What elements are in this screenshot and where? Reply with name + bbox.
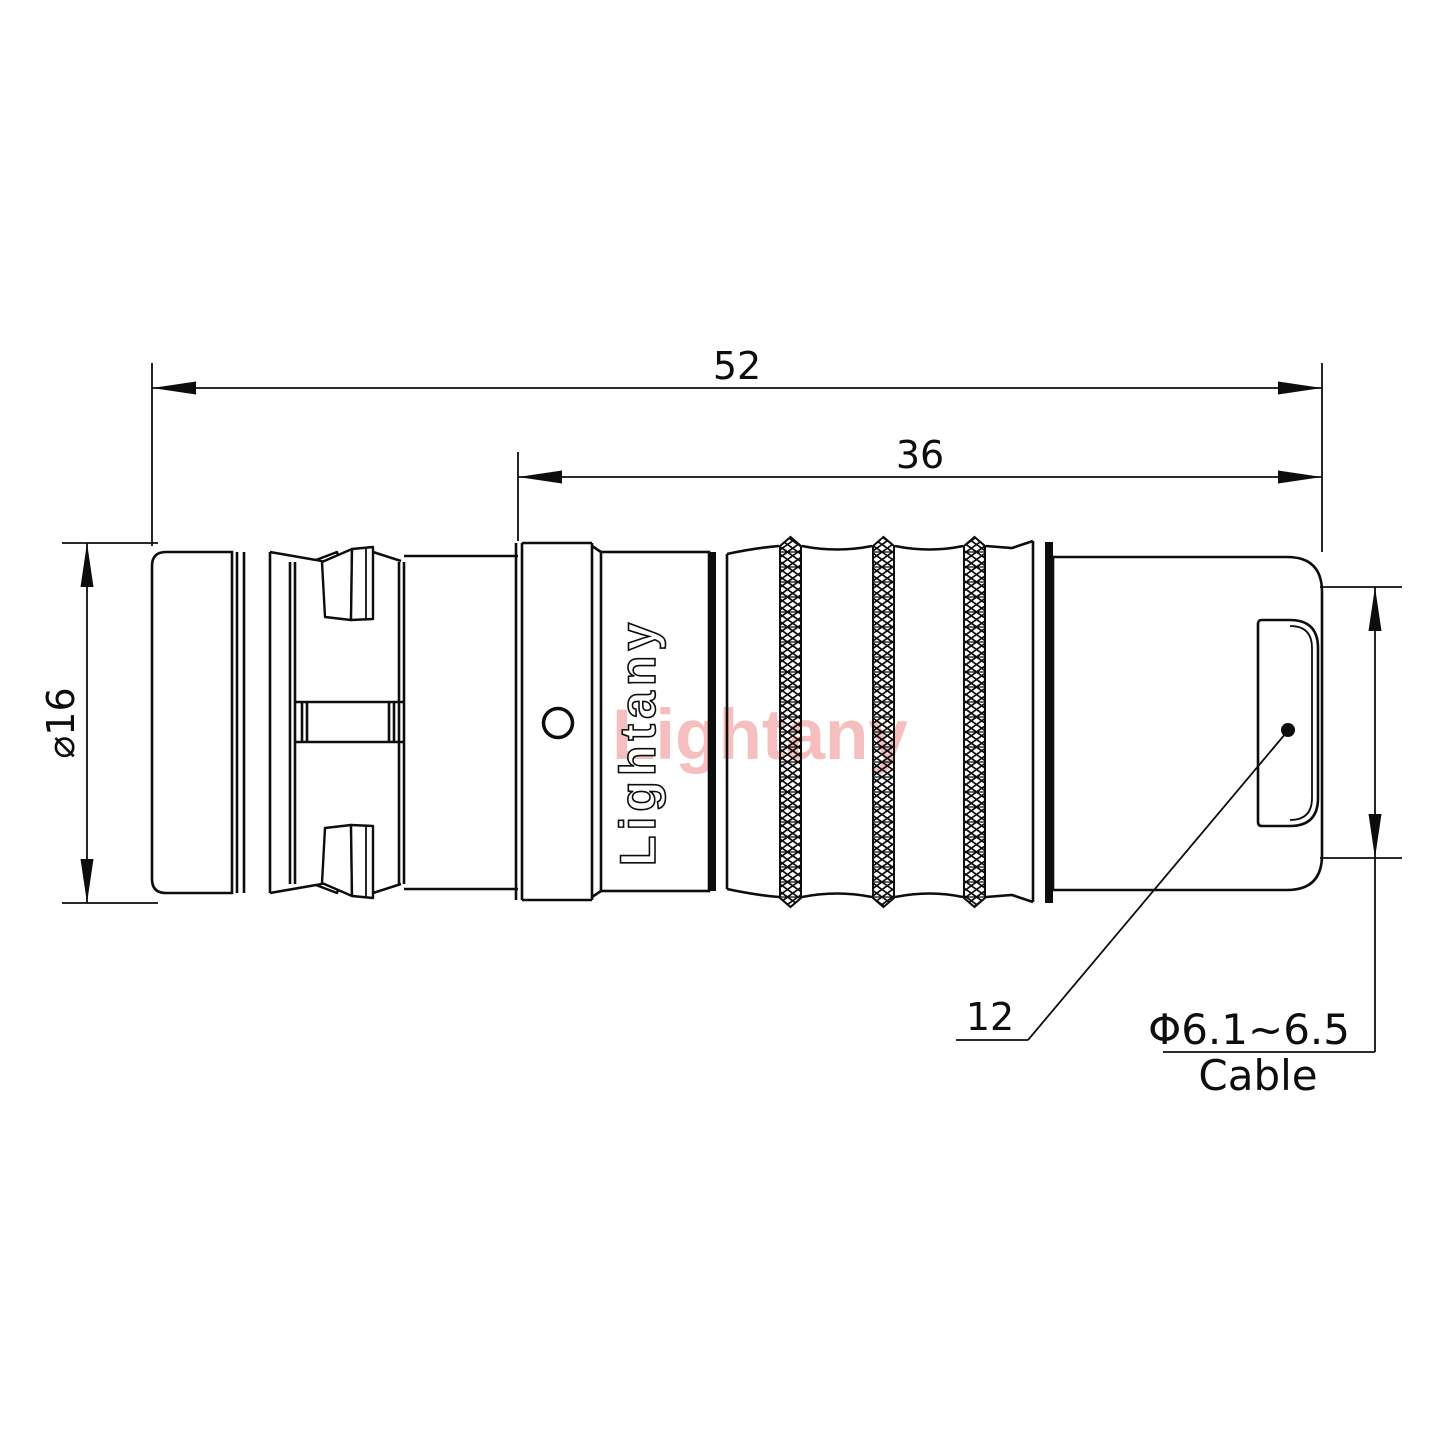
- dim-12-label: 12: [966, 995, 1014, 1039]
- knurl-band-1: [780, 537, 801, 907]
- dimension-body-diameter: ⌀16: [39, 543, 158, 903]
- leader-nut-ref: 12: [956, 733, 1286, 1040]
- vent-hole: [544, 709, 573, 738]
- top-latch-pin: [316, 547, 373, 620]
- cable-word-label: Cable: [1198, 1051, 1317, 1100]
- leader-dot: [1281, 723, 1295, 737]
- collar: [516, 543, 601, 900]
- dim-52-label: 52: [713, 344, 761, 388]
- branded-band: Lightany: [601, 552, 716, 891]
- bottom-latch-pin: [316, 825, 373, 898]
- dimension-cable-range: Φ6.1~6.5 Cable: [1148, 587, 1402, 1100]
- drawing-canvas: Lightany 52 36: [0, 0, 1440, 1440]
- cable-range-label: Φ6.1~6.5: [1148, 1005, 1350, 1054]
- front-ring: [152, 552, 270, 893]
- dimension-overall-length: 52: [152, 344, 1322, 552]
- connector-body: Lightany: [152, 537, 1322, 907]
- knurl-band-3: [964, 537, 985, 907]
- dimension-rear-length: 36: [518, 433, 1322, 541]
- dim-36-label: 36: [896, 433, 944, 477]
- knurled-section: [727, 537, 1053, 907]
- knurl-band-2: [873, 537, 894, 907]
- dim-dia16-label: ⌀16: [39, 687, 83, 758]
- cable-end-cap: [1053, 557, 1322, 890]
- body-brand-text: Lightany: [610, 618, 666, 866]
- connector-technical-drawing: 52 36 ⌀16: [0, 0, 1440, 1440]
- latch-housing: [270, 547, 518, 898]
